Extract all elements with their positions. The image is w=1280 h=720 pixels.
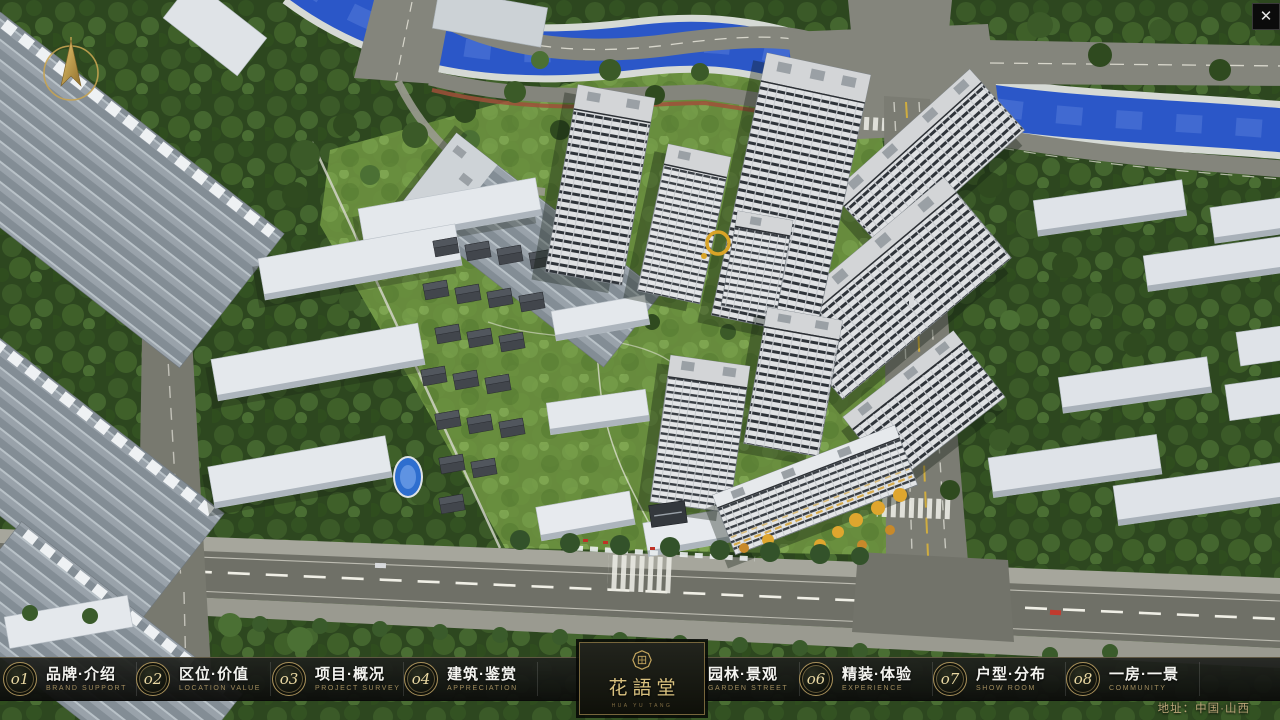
badge-02: o2 — [136, 662, 170, 696]
badge-07: o7 — [933, 662, 967, 696]
nav-label-zh: 园林·景观 — [708, 667, 788, 682]
compass — [36, 32, 106, 108]
nav-label-zh: 区位·价值 — [179, 667, 261, 682]
nav-label-zh: 一房·一景 — [1109, 667, 1179, 682]
swimming-pool — [393, 456, 423, 498]
nav-item-view[interactable]: o8 一房·一景 COMMUNITY — [1066, 658, 1200, 700]
badge-01: o1 — [3, 662, 37, 696]
nav-label-en: LOCATION VALUE — [179, 685, 261, 692]
nav-label-en: SHOW ROOM — [976, 685, 1046, 692]
nav-item-project[interactable]: o3 项目·概况 PROJECT SURVEY — [272, 658, 406, 700]
aerial-render-viewport[interactable] — [0, 0, 1280, 720]
project-logo[interactable]: 花語堂 HUA YU TANG — [579, 642, 705, 715]
nav-label-zh: 精装·体验 — [842, 667, 912, 682]
nav-label-en: GARDEN STREET — [708, 685, 788, 692]
nav-label-en: EXPERIENCE — [842, 685, 912, 692]
close-button[interactable]: ✕ — [1252, 3, 1280, 30]
seal-icon — [631, 649, 653, 671]
badge-03: o3 — [272, 662, 306, 696]
logo-title: 花語堂 — [603, 673, 680, 700]
presentation-window: ✕ o1 品牌·介绍 BRAND SUPPORT o2 区位·价值 LOCATI… — [0, 0, 1280, 720]
badge-08: o8 — [1066, 662, 1100, 696]
nav-label-zh: 建筑·鉴赏 — [447, 667, 518, 682]
nav-label-en: PROJECT SURVEY — [315, 685, 401, 692]
divider — [270, 662, 271, 696]
nav-label-zh: 项目·概况 — [315, 667, 401, 682]
address-text: 地址：中国·山西 — [1158, 700, 1250, 716]
nav-label-en: BRAND SUPPORT — [46, 685, 127, 692]
badge-04: o4 — [404, 662, 438, 696]
nav-label-zh: 户型·分布 — [976, 667, 1046, 682]
nav-item-architecture[interactable]: o4 建筑·鉴赏 APPRECIATION — [404, 658, 538, 700]
nav-item-location[interactable]: o2 区位·价值 LOCATION VALUE — [136, 658, 270, 700]
nav-item-brand[interactable]: o1 品牌·介绍 BRAND SUPPORT — [3, 658, 137, 700]
logo-subtitle: HUA YU TANG — [612, 703, 673, 709]
nav-label-en: APPRECIATION — [447, 685, 518, 692]
badge-06: o6 — [799, 662, 833, 696]
nav-item-floorplan[interactable]: o7 户型·分布 SHOW ROOM — [933, 658, 1067, 700]
nav-label-zh: 品牌·介绍 — [46, 667, 127, 682]
nav-label-en: COMMUNITY — [1109, 685, 1179, 692]
nav-item-interior[interactable]: o6 精装·体验 EXPERIENCE — [799, 658, 933, 700]
